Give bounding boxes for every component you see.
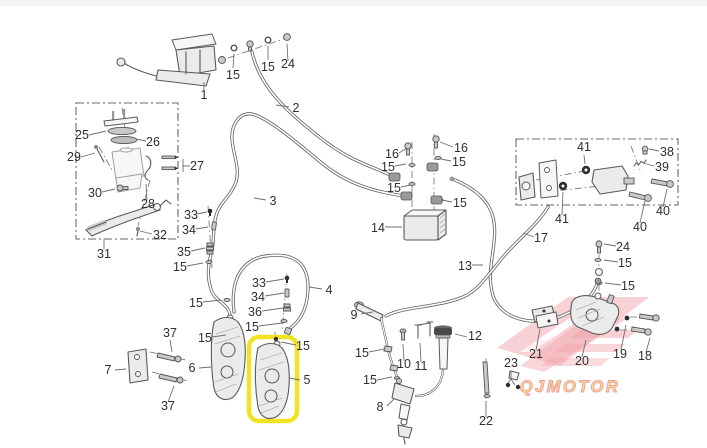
callout-part-7[interactable]: 7 bbox=[105, 363, 112, 377]
callout-part-15[interactable]: 15 bbox=[226, 68, 240, 82]
hose-13-end-fitting bbox=[595, 278, 601, 284]
callout-part-37[interactable]: 37 bbox=[161, 399, 175, 413]
callout-part-21[interactable]: 21 bbox=[529, 347, 543, 361]
callout-part-25[interactable]: 25 bbox=[75, 128, 89, 142]
callout-part-15[interactable]: 15 bbox=[198, 331, 212, 345]
part-14-abs-modulator bbox=[404, 210, 446, 240]
part-37-bolts bbox=[157, 353, 183, 383]
callout-part-15[interactable]: 15 bbox=[387, 181, 401, 195]
part-22-bolt bbox=[483, 362, 490, 398]
callout-part-15[interactable]: 15 bbox=[355, 346, 369, 360]
part-11-clamp bbox=[415, 322, 433, 338]
callout-part-24[interactable]: 24 bbox=[616, 240, 630, 254]
callout-part-40[interactable]: 40 bbox=[656, 204, 670, 218]
callout-part-15[interactable]: 15 bbox=[618, 256, 632, 270]
callout-part-15[interactable]: 15 bbox=[452, 155, 466, 169]
front-master-cylinder-subassembly bbox=[86, 109, 178, 236]
callout-part-15[interactable]: 15 bbox=[363, 373, 377, 387]
callout-part-32[interactable]: 32 bbox=[153, 228, 167, 242]
part-5-front-caliper[interactable] bbox=[255, 337, 289, 419]
callout-part-22[interactable]: 22 bbox=[479, 414, 493, 428]
callout-part-2[interactable]: 2 bbox=[293, 101, 300, 115]
callout-part-41[interactable]: 41 bbox=[577, 140, 591, 154]
callout-part-16[interactable]: 16 bbox=[454, 141, 468, 155]
callout-part-37[interactable]: 37 bbox=[163, 326, 177, 340]
callout-part-16[interactable]: 16 bbox=[385, 147, 399, 161]
callout-labels: 15 15 24 1 2 25 26 29 27 30 28 32 31 33 … bbox=[67, 57, 674, 428]
callout-part-17[interactable]: 17 bbox=[534, 231, 548, 245]
callout-part-33[interactable]: 33 bbox=[184, 208, 198, 222]
callout-part-5[interactable]: 5 bbox=[304, 373, 311, 387]
callout-part-4[interactable]: 4 bbox=[326, 283, 333, 297]
callout-part-30[interactable]: 30 bbox=[88, 186, 102, 200]
callout-part-10[interactable]: 10 bbox=[397, 357, 411, 371]
callout-part-3[interactable]: 3 bbox=[270, 194, 277, 208]
callout-part-19[interactable]: 19 bbox=[613, 347, 627, 361]
rear-master-cylinder-subassembly bbox=[519, 146, 673, 201]
parts-diagram-canvas: QJMOTOR bbox=[0, 0, 707, 448]
callout-part-11[interactable]: 11 bbox=[415, 359, 428, 373]
part-23-screws bbox=[506, 371, 520, 389]
callout-part-33[interactable]: 33 bbox=[252, 276, 266, 290]
callout-part-8[interactable]: 8 bbox=[377, 400, 384, 414]
callout-part-14[interactable]: 14 bbox=[371, 221, 385, 235]
part-7-bracket bbox=[128, 349, 148, 383]
callout-part-13[interactable]: 13 bbox=[458, 259, 472, 273]
hose-13-start-fitting bbox=[450, 177, 455, 182]
part-10-bolt bbox=[400, 329, 406, 340]
callout-part-36[interactable]: 36 bbox=[248, 305, 262, 319]
callout-part-18[interactable]: 18 bbox=[638, 349, 652, 363]
callout-part-23[interactable]: 23 bbox=[504, 356, 518, 370]
callout-part-9[interactable]: 9 bbox=[351, 308, 358, 322]
part-12-rear-reservoir bbox=[434, 325, 452, 369]
callout-part-24[interactable]: 24 bbox=[281, 57, 295, 71]
callout-part-27[interactable]: 27 bbox=[190, 159, 204, 173]
callout-part-41[interactable]: 41 bbox=[555, 212, 569, 226]
callout-part-38[interactable]: 38 bbox=[660, 145, 674, 159]
callout-part-15[interactable]: 15 bbox=[381, 160, 395, 174]
callout-part-1[interactable]: 1 bbox=[201, 88, 208, 102]
callout-part-34[interactable]: 34 bbox=[182, 223, 196, 237]
callout-part-29[interactable]: 29 bbox=[67, 150, 81, 164]
callout-part-31[interactable]: 31 bbox=[97, 247, 111, 261]
hose-2-end-fitting bbox=[390, 174, 395, 179]
part-6-front-caliper bbox=[211, 315, 245, 400]
reservoir-hose bbox=[416, 369, 443, 396]
callout-part-20[interactable]: 20 bbox=[575, 354, 589, 368]
brake-system-exploded-diagram: QJMOTOR bbox=[0, 0, 707, 448]
callout-part-28[interactable]: 28 bbox=[141, 197, 155, 211]
part-8-rear-master-cylinder bbox=[392, 379, 414, 445]
front-brake-hose-4 bbox=[233, 255, 308, 330]
callout-part-15[interactable]: 15 bbox=[261, 60, 275, 74]
callout-part-6[interactable]: 6 bbox=[189, 361, 196, 375]
top-strip bbox=[0, 0, 707, 6]
callout-part-15[interactable]: 15 bbox=[453, 196, 467, 210]
callout-part-34[interactable]: 34 bbox=[251, 290, 265, 304]
watermark-text: QJMOTOR bbox=[520, 378, 621, 396]
callout-part-39[interactable]: 39 bbox=[655, 160, 669, 174]
callout-part-15[interactable]: 15 bbox=[189, 296, 203, 310]
callout-part-15[interactable]: 15 bbox=[296, 339, 310, 353]
callout-part-35[interactable]: 35 bbox=[177, 245, 191, 259]
callout-part-15[interactable]: 15 bbox=[245, 320, 259, 334]
callout-part-15[interactable]: 15 bbox=[173, 260, 187, 274]
callout-part-26[interactable]: 26 bbox=[146, 135, 160, 149]
callout-part-12[interactable]: 12 bbox=[468, 329, 482, 343]
callout-part-15[interactable]: 15 bbox=[621, 279, 635, 293]
callout-part-40[interactable]: 40 bbox=[633, 220, 647, 234]
